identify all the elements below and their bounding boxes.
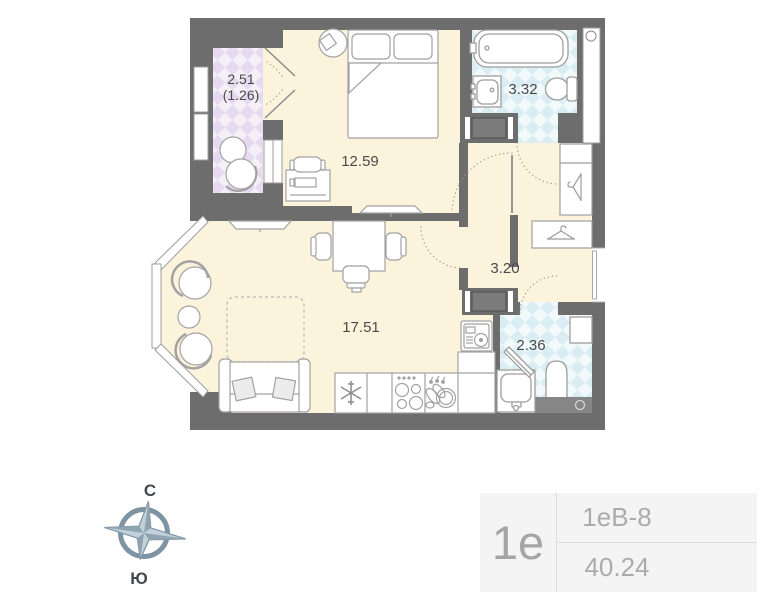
wall-balcony-south xyxy=(190,193,263,207)
vent-shaft-lower xyxy=(462,288,518,315)
shaft-slot xyxy=(508,291,513,312)
dining-chair xyxy=(343,266,369,283)
washing-machine-icon xyxy=(461,321,492,351)
wc-counter xyxy=(535,397,592,413)
bathtub-drain xyxy=(485,46,489,50)
compass-rose-icon: С Ю xyxy=(101,481,190,588)
unit-info-card: 1е 1еВ-8 40.24 xyxy=(480,493,757,592)
side-table xyxy=(178,306,200,328)
toilet-bowl xyxy=(546,78,569,100)
shaft-slot xyxy=(508,117,513,139)
wardrobe-tall xyxy=(560,144,592,215)
bay-window-middle xyxy=(152,264,161,348)
wall-bedroom-living-thick xyxy=(190,206,352,221)
dining-chair xyxy=(315,233,331,260)
sofa-pillow xyxy=(232,377,256,401)
entrance-door xyxy=(592,248,605,302)
wall-bathroom-south-right xyxy=(558,113,583,143)
pillow xyxy=(352,34,390,59)
chair-back xyxy=(401,237,406,256)
wall-balcony-divider-low xyxy=(263,183,283,207)
water-heater xyxy=(570,317,592,343)
kitchen-corner-counter xyxy=(458,352,495,413)
unit-info-right: 1еВ-8 40.24 xyxy=(557,493,757,592)
shaft-inner xyxy=(472,118,506,138)
balcony-window-pane xyxy=(194,114,208,160)
shaft-slot xyxy=(465,291,470,312)
laptop xyxy=(295,178,316,187)
compass-north-label: С xyxy=(144,481,156,500)
wall-hall-divider-lower xyxy=(459,268,468,290)
sink-faucet xyxy=(471,94,475,99)
chair-arm xyxy=(290,160,294,170)
chair-back xyxy=(311,237,316,256)
balcony-window-pane xyxy=(194,67,208,112)
sink-faucet xyxy=(471,84,475,89)
balcony-area-label: 2.51 xyxy=(227,71,254,87)
duct-column xyxy=(583,28,600,143)
living-tv xyxy=(229,221,291,229)
wall-top-left xyxy=(190,18,283,48)
entrance-door-leaf xyxy=(593,251,597,299)
chair-back xyxy=(347,283,365,288)
wall-balcony-divider-mid xyxy=(263,120,283,140)
desk-chair xyxy=(293,157,322,172)
toilet-tank xyxy=(567,77,577,101)
bathtub-faucet xyxy=(470,43,476,53)
balcony-reduced-label: (1.26) xyxy=(223,87,260,103)
wall-wc-north-right xyxy=(558,302,592,315)
wc-area-label: 2.36 xyxy=(516,337,545,354)
duct-body xyxy=(583,28,600,143)
hallway-area-label: 3.20 xyxy=(490,260,519,277)
wall-bathroom-east-thin xyxy=(577,30,583,113)
desk-item xyxy=(290,179,294,186)
sofa-pillow xyxy=(272,377,295,400)
unit-total-area: 40.24 xyxy=(557,543,757,592)
wall-right-lower xyxy=(592,302,605,430)
shaft-inner xyxy=(472,292,506,311)
wall-bottom xyxy=(190,413,605,430)
shaft-slot xyxy=(465,117,470,139)
sink-drain xyxy=(490,88,494,92)
wall-bedroom-living-thin xyxy=(352,213,468,221)
wall-top xyxy=(283,18,605,30)
wc-toilet xyxy=(546,361,567,397)
wardrobe-entry xyxy=(532,221,592,248)
bedroom-tv xyxy=(360,206,422,213)
dining-chair xyxy=(386,233,402,260)
chair-arm xyxy=(321,160,325,170)
wc-sink-drain xyxy=(514,406,519,411)
wall-hall-divider-upper xyxy=(459,143,468,227)
pillow xyxy=(394,34,432,59)
unit-code: 1еВ-8 xyxy=(557,493,757,543)
bedroom-area-label: 12.59 xyxy=(341,153,379,170)
vent-shaft-upper xyxy=(462,113,518,143)
armchair xyxy=(180,333,212,365)
unit-type-short: 1е xyxy=(480,493,557,592)
dining-table xyxy=(333,221,385,271)
compass-south-label: Ю xyxy=(130,569,148,588)
chair-base xyxy=(352,288,361,292)
floorplan-page: 2.51 (1.26) 12.59 3.32 3.20 17.51 2.36 С… xyxy=(0,0,760,600)
bathroom-area-label: 3.32 xyxy=(508,81,537,98)
living-area-label: 17.51 xyxy=(342,319,380,336)
